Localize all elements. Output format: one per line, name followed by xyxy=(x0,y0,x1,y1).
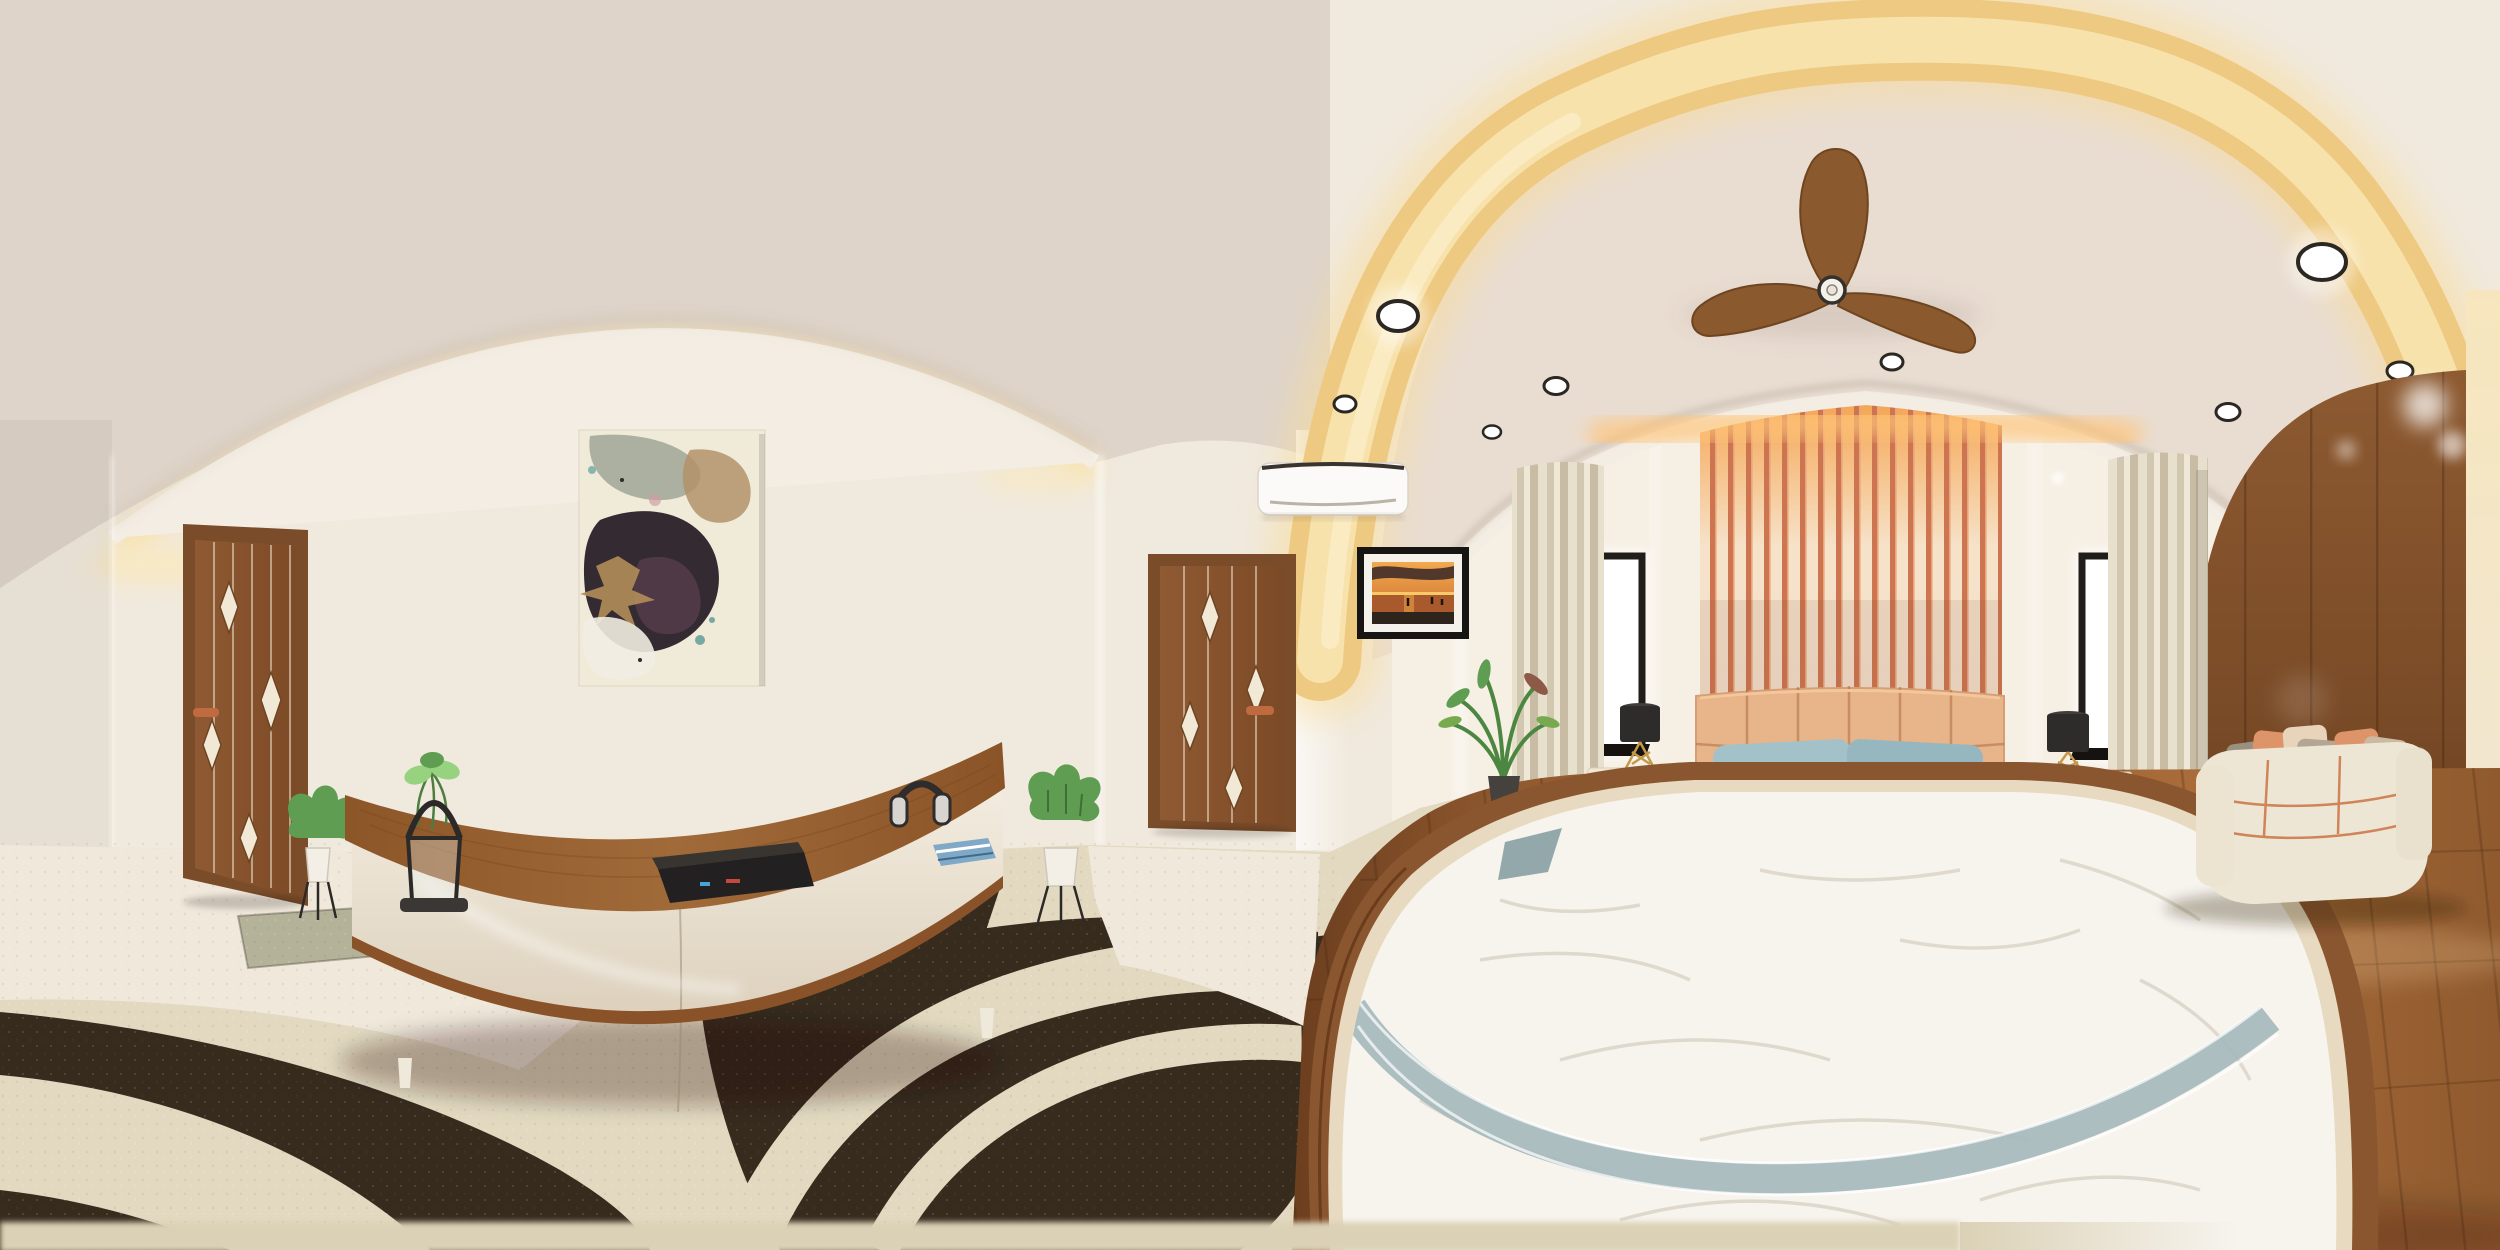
middle-wooden-door xyxy=(1148,552,1296,838)
console-leg xyxy=(980,1008,994,1038)
panel-light-reflection xyxy=(2438,431,2466,459)
console-leg xyxy=(398,1058,412,1088)
left-wall-corner-highlight xyxy=(110,455,114,885)
console-shadow xyxy=(340,1018,1000,1106)
spotlight xyxy=(2216,404,2240,421)
plant-pot xyxy=(306,848,330,882)
arch-under-glow xyxy=(1590,422,2140,436)
panorama-bedroom-scene[interactable] xyxy=(0,0,2500,1250)
door-handle xyxy=(193,708,219,717)
framed-sunset-photo xyxy=(1357,547,1469,639)
panel-reflection xyxy=(1652,430,1659,730)
lantern-base xyxy=(400,898,468,912)
air-conditioner xyxy=(1258,463,1408,520)
spotlight xyxy=(2288,228,2356,296)
panel-light-reflection xyxy=(2336,440,2356,460)
spotlight xyxy=(1483,426,1501,439)
spotlight xyxy=(1881,354,1903,370)
abstract-painting xyxy=(579,430,765,686)
sofa-arm-left xyxy=(2196,766,2234,886)
curtain-left xyxy=(1512,462,1604,816)
floor-bottom-strip xyxy=(0,1222,1960,1250)
panel-light-reflection xyxy=(2403,383,2447,427)
spotlight xyxy=(1368,286,1428,346)
lantern-glass xyxy=(408,838,460,900)
door-handle xyxy=(1246,706,1274,715)
spotlight xyxy=(1544,378,1568,395)
spotlight xyxy=(1334,396,1356,412)
left-wall-corner-shade xyxy=(0,420,112,890)
left-wooden-door xyxy=(183,524,308,909)
panorama-image xyxy=(0,0,2500,1250)
floor-bottom-strip-fade xyxy=(1960,1222,2240,1250)
panel-reflection xyxy=(2030,440,2039,780)
sofa-arm-right xyxy=(2396,748,2432,860)
